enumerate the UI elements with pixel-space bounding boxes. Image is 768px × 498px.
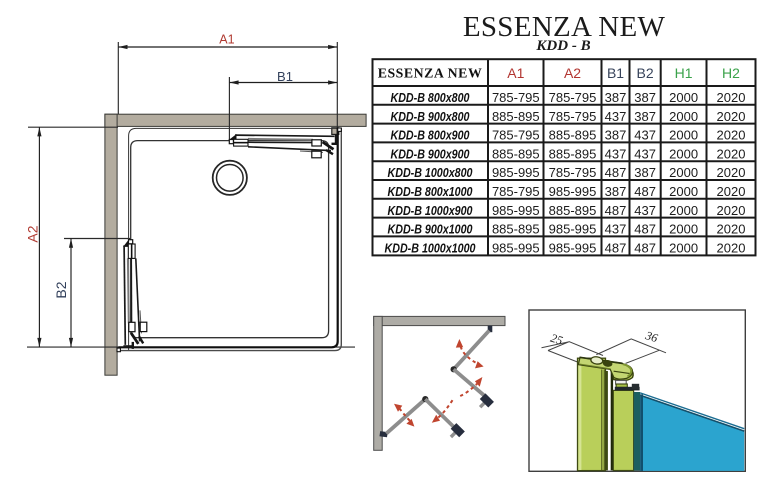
- svg-text:387: 387: [605, 90, 627, 105]
- svg-text:885-895: 885-895: [492, 146, 540, 161]
- svg-text:487: 487: [605, 240, 627, 255]
- svg-text:985-995: 985-995: [492, 240, 540, 255]
- svg-text:487: 487: [605, 165, 627, 180]
- svg-text:437: 437: [605, 109, 627, 124]
- svg-text:785-795: 785-795: [492, 128, 540, 143]
- svg-text:487: 487: [634, 240, 656, 255]
- svg-text:985-995: 985-995: [492, 165, 540, 180]
- svg-text:B2: B2: [637, 65, 654, 81]
- svg-text:2020: 2020: [717, 203, 746, 218]
- svg-text:387: 387: [634, 165, 656, 180]
- svg-text:KDD-B 1000x800: KDD-B 1000x800: [388, 165, 474, 180]
- svg-text:2000: 2000: [669, 146, 698, 161]
- svg-text:2000: 2000: [669, 109, 698, 124]
- svg-text:KDD-B 800x800: KDD-B 800x800: [391, 90, 471, 105]
- svg-text:785-795: 785-795: [492, 90, 540, 105]
- svg-text:487: 487: [605, 203, 627, 218]
- svg-text:2000: 2000: [669, 240, 698, 255]
- svg-text:2000: 2000: [669, 128, 698, 143]
- svg-text:487: 487: [634, 222, 656, 237]
- svg-text:2000: 2000: [669, 222, 698, 237]
- svg-text:885-895: 885-895: [549, 203, 597, 218]
- svg-text:A2: A2: [25, 225, 41, 242]
- svg-text:387: 387: [605, 128, 627, 143]
- svg-text:437: 437: [634, 146, 656, 161]
- svg-text:437: 437: [634, 128, 656, 143]
- svg-text:H1: H1: [675, 65, 693, 81]
- svg-text:KDD-B 800x900: KDD-B 800x900: [391, 128, 471, 143]
- svg-text:985-995: 985-995: [492, 203, 540, 218]
- svg-text:KDD-B 900x900: KDD-B 900x900: [391, 146, 471, 161]
- svg-text:2020: 2020: [717, 222, 746, 237]
- svg-text:437: 437: [605, 146, 627, 161]
- svg-text:387: 387: [634, 90, 656, 105]
- svg-text:885-895: 885-895: [492, 109, 540, 124]
- svg-text:437: 437: [605, 222, 627, 237]
- svg-text:2020: 2020: [717, 90, 746, 105]
- svg-text:KDD - B: KDD - B: [535, 38, 590, 54]
- svg-text:785-795: 785-795: [549, 109, 597, 124]
- svg-text:KDD-B 1000x900: KDD-B 1000x900: [388, 203, 474, 218]
- svg-text:785-795: 785-795: [549, 90, 597, 105]
- svg-text:985-995: 985-995: [549, 240, 597, 255]
- svg-text:2020: 2020: [717, 128, 746, 143]
- svg-text:2020: 2020: [717, 184, 746, 199]
- svg-text:487: 487: [634, 184, 656, 199]
- svg-text:KDD-B 1000x1000: KDD-B 1000x1000: [385, 240, 477, 255]
- svg-text:2000: 2000: [669, 184, 698, 199]
- svg-text:2000: 2000: [669, 90, 698, 105]
- svg-text:985-995: 985-995: [549, 222, 597, 237]
- svg-text:785-795: 785-795: [492, 184, 540, 199]
- svg-text:A2: A2: [564, 65, 581, 81]
- svg-text:885-895: 885-895: [492, 222, 540, 237]
- svg-text:B2: B2: [53, 281, 69, 298]
- svg-text:387: 387: [605, 184, 627, 199]
- svg-text:985-995: 985-995: [549, 184, 597, 199]
- svg-text:387: 387: [634, 109, 656, 124]
- svg-text:2020: 2020: [717, 109, 746, 124]
- svg-text:B1: B1: [277, 69, 293, 84]
- svg-text:ESSENZA NEW: ESSENZA NEW: [378, 66, 483, 81]
- svg-text:2000: 2000: [669, 203, 698, 218]
- svg-text:A1: A1: [507, 65, 524, 81]
- svg-text:KDD-B 900x800: KDD-B 900x800: [391, 109, 471, 124]
- svg-text:885-895: 885-895: [549, 146, 597, 161]
- svg-text:A1: A1: [219, 33, 234, 47]
- svg-text:2000: 2000: [669, 165, 698, 180]
- svg-text:885-895: 885-895: [549, 128, 597, 143]
- svg-text:B1: B1: [607, 65, 624, 81]
- svg-text:785-795: 785-795: [549, 165, 597, 180]
- svg-text:KDD-B 800x1000: KDD-B 800x1000: [388, 184, 474, 199]
- svg-text:H2: H2: [722, 65, 740, 81]
- svg-text:2020: 2020: [717, 240, 746, 255]
- svg-text:KDD-B 900x1000: KDD-B 900x1000: [388, 222, 474, 237]
- svg-text:2020: 2020: [717, 146, 746, 161]
- svg-text:437: 437: [634, 203, 656, 218]
- svg-text:2020: 2020: [717, 165, 746, 180]
